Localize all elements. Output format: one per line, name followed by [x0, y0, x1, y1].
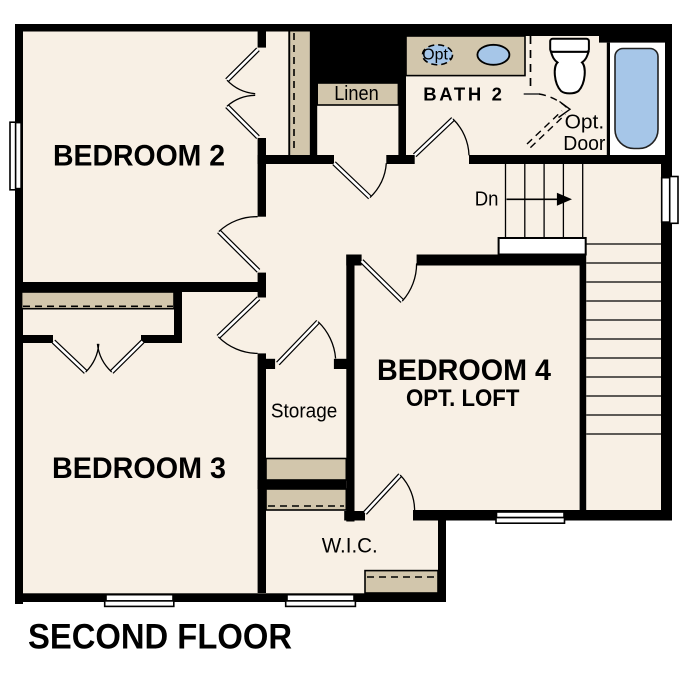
svg-text:SECOND FLOOR: SECOND FLOOR — [28, 618, 292, 657]
svg-text:Opt.: Opt. — [422, 47, 452, 64]
svg-text:BEDROOM 4: BEDROOM 4 — [377, 354, 551, 387]
svg-text:Opt.: Opt. — [565, 112, 605, 134]
svg-text:BEDROOM 2: BEDROOM 2 — [53, 140, 225, 173]
svg-text:BEDROOM 3: BEDROOM 3 — [52, 452, 226, 485]
svg-text:Linen: Linen — [334, 83, 379, 105]
svg-text:Door: Door — [563, 133, 605, 155]
svg-text:W.I.C.: W.I.C. — [322, 535, 378, 558]
svg-text:Storage: Storage — [271, 400, 337, 422]
svg-text:Dn: Dn — [475, 188, 499, 210]
svg-text:OPT. LOFT: OPT. LOFT — [406, 385, 520, 412]
